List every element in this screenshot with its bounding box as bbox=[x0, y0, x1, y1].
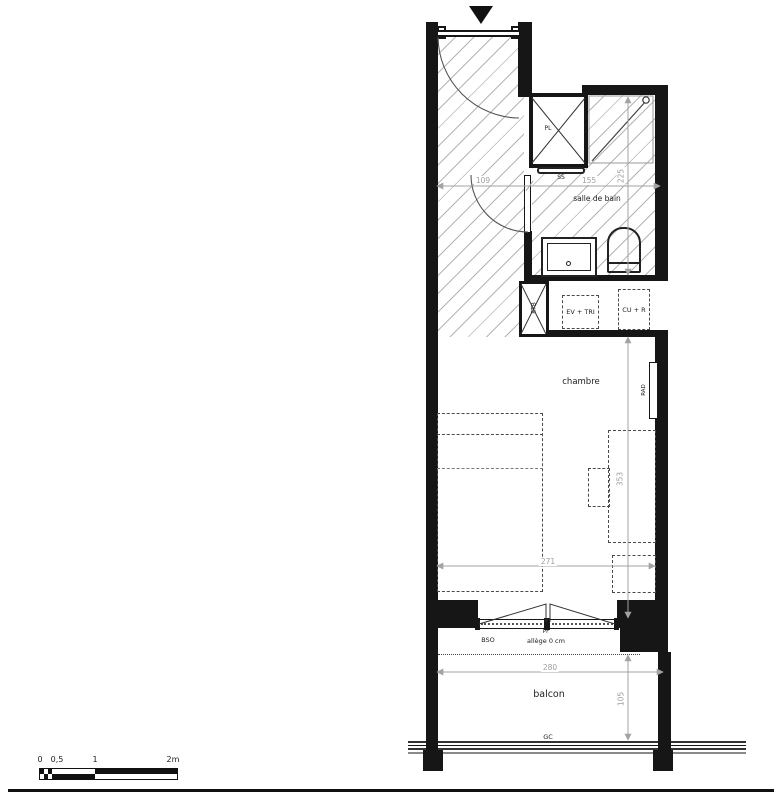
footer-rule bbox=[8, 789, 774, 792]
scale-tick-0: 0 bbox=[37, 755, 42, 764]
shower-diagonal bbox=[592, 101, 646, 161]
scale-bar-bottom-row bbox=[40, 774, 177, 779]
dim-entry-width: 109 bbox=[474, 176, 492, 185]
dim-balcony-depth: 105 bbox=[617, 690, 626, 708]
scale-tick-1: 1 bbox=[92, 755, 97, 764]
blind-label: BSO bbox=[481, 636, 495, 644]
scale-tick-05: 0,5 bbox=[51, 755, 64, 764]
linework-overlay bbox=[0, 0, 782, 800]
entry-door-arc bbox=[438, 37, 519, 118]
sill-label: allège 0 cm bbox=[527, 637, 565, 645]
dim-balcony-width: 280 bbox=[541, 663, 559, 672]
guardrail-label: GC bbox=[543, 733, 553, 741]
window-opening-left bbox=[479, 604, 546, 624]
bedroom-label: chambre bbox=[562, 377, 599, 387]
towel-rail-label: SS bbox=[557, 174, 565, 181]
balcony-label: balcon bbox=[533, 689, 565, 700]
dim-bathroom-depth: 225 bbox=[617, 167, 626, 185]
scale-tick-2m: 2m bbox=[167, 755, 180, 764]
french-window-label: PF bbox=[543, 629, 549, 635]
dim-bedroom-width: 271 bbox=[539, 557, 557, 566]
shower-head bbox=[643, 97, 649, 103]
window-opening-right bbox=[550, 604, 615, 624]
dim-bathroom-width: 155 bbox=[580, 176, 598, 185]
closet-label: PL bbox=[545, 125, 552, 132]
floor-plan-page: EV + TRI CU + R bbox=[0, 0, 782, 800]
bathroom-label: salle de bain bbox=[573, 194, 621, 203]
scale-bar bbox=[39, 768, 178, 780]
duct-label: ETB bbox=[531, 302, 538, 314]
radiator-label: RAD bbox=[641, 384, 647, 396]
dim-bedroom-depth: 353 bbox=[616, 470, 625, 488]
